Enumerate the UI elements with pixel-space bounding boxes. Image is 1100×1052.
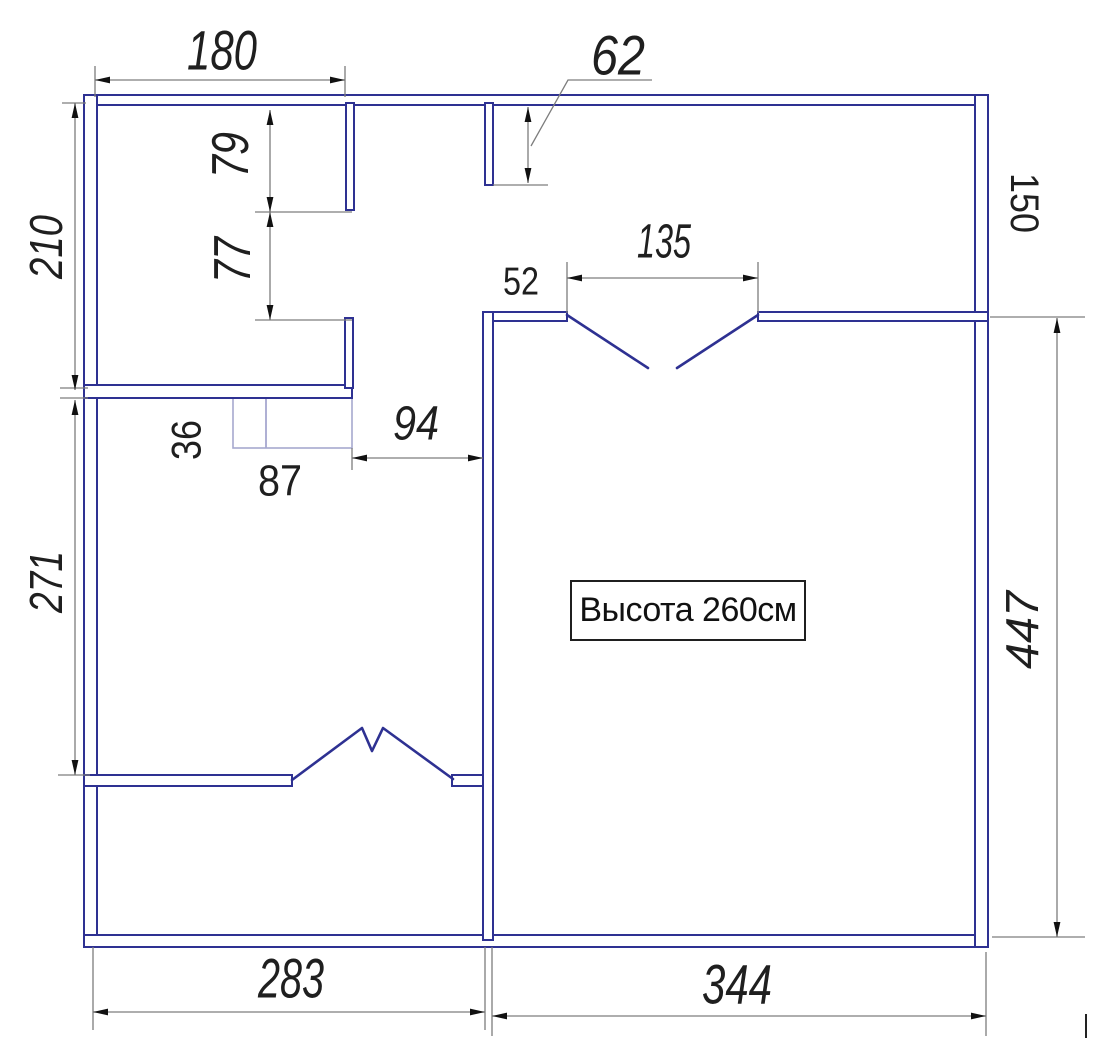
dim-label-344: 344 xyxy=(702,953,772,1016)
double-door-right-room-right-leaf xyxy=(677,315,758,368)
left-wall xyxy=(84,95,97,947)
dim-label-210: 210 xyxy=(20,215,72,280)
dim-label-94: 94 xyxy=(393,398,439,451)
hall-wall-52 xyxy=(483,312,567,321)
dim-line-77-arrow-start xyxy=(267,212,274,227)
dim-line-344-arrow-end xyxy=(971,1013,986,1020)
dim-label-180: 180 xyxy=(187,19,257,82)
dim-label-87: 87 xyxy=(258,457,302,506)
dim-label-150: 150 xyxy=(1002,173,1046,233)
dim-label-135: 135 xyxy=(637,216,691,269)
dim-label-52: 52 xyxy=(503,261,539,304)
dim-line-210-arrow-start xyxy=(72,103,79,118)
dim-label-36: 36 xyxy=(163,420,210,460)
floor-plan-drawing: 18062797721027113552943687150447283344 xyxy=(0,0,1100,1052)
left-divider-stub xyxy=(345,318,353,388)
dim-line-180-arrow-end xyxy=(330,77,345,84)
dim-line-447-arrow-start xyxy=(1054,318,1061,333)
left-divider-wall xyxy=(84,385,352,398)
top-stub-right xyxy=(485,103,493,185)
dim-label-271: 271 xyxy=(20,551,72,614)
bottom-wall xyxy=(84,935,988,947)
dim-line-283-arrow-end xyxy=(470,1009,485,1016)
double-door-right-room-left-leaf xyxy=(567,315,648,368)
dim-line-94-arrow-end xyxy=(468,455,483,462)
dim-line-77-arrow-end xyxy=(267,305,274,320)
dim-line-271-arrow-end xyxy=(72,760,79,775)
dim-line-62-arrow-end xyxy=(525,168,532,183)
dim-label-79: 79 xyxy=(202,132,260,178)
double-door-lower-room xyxy=(292,728,453,780)
middle-wall xyxy=(483,312,493,940)
dim-line-271-arrow-start xyxy=(72,400,79,415)
lower-room-wall-stub xyxy=(452,775,483,786)
top-wall xyxy=(84,95,988,105)
dim-line-79-arrow-end xyxy=(267,197,274,212)
dim-label-77: 77 xyxy=(204,235,262,283)
hall-wall-right xyxy=(758,312,988,321)
dim-line-344-arrow-start xyxy=(492,1013,507,1020)
dim-line-79-arrow-start xyxy=(267,110,274,125)
floor-plan-canvas: 18062797721027113552943687150447283344 В… xyxy=(0,0,1100,1052)
lower-room-wall-left xyxy=(84,775,292,786)
right-wall xyxy=(975,95,988,947)
dim-line-62-arrow-start xyxy=(525,107,532,122)
dim-label-447: 447 xyxy=(996,590,1048,669)
dim-label-62: 62 xyxy=(591,24,645,87)
dim-line-447-arrow-end xyxy=(1054,922,1061,937)
dim-line-283-arrow-start xyxy=(93,1009,108,1016)
dim-label-283: 283 xyxy=(257,947,324,1010)
dim-line-135-arrow-start xyxy=(567,275,582,282)
dim-line-94-arrow-start xyxy=(352,455,367,462)
top-stub-left xyxy=(346,103,354,210)
dim-line-135-arrow-end xyxy=(743,275,758,282)
ceiling-height-note: Высота 260см xyxy=(570,580,806,641)
dim-line-180-arrow-start xyxy=(95,77,110,84)
leader-line-62 xyxy=(531,80,652,146)
vent-box-outline xyxy=(233,398,352,448)
